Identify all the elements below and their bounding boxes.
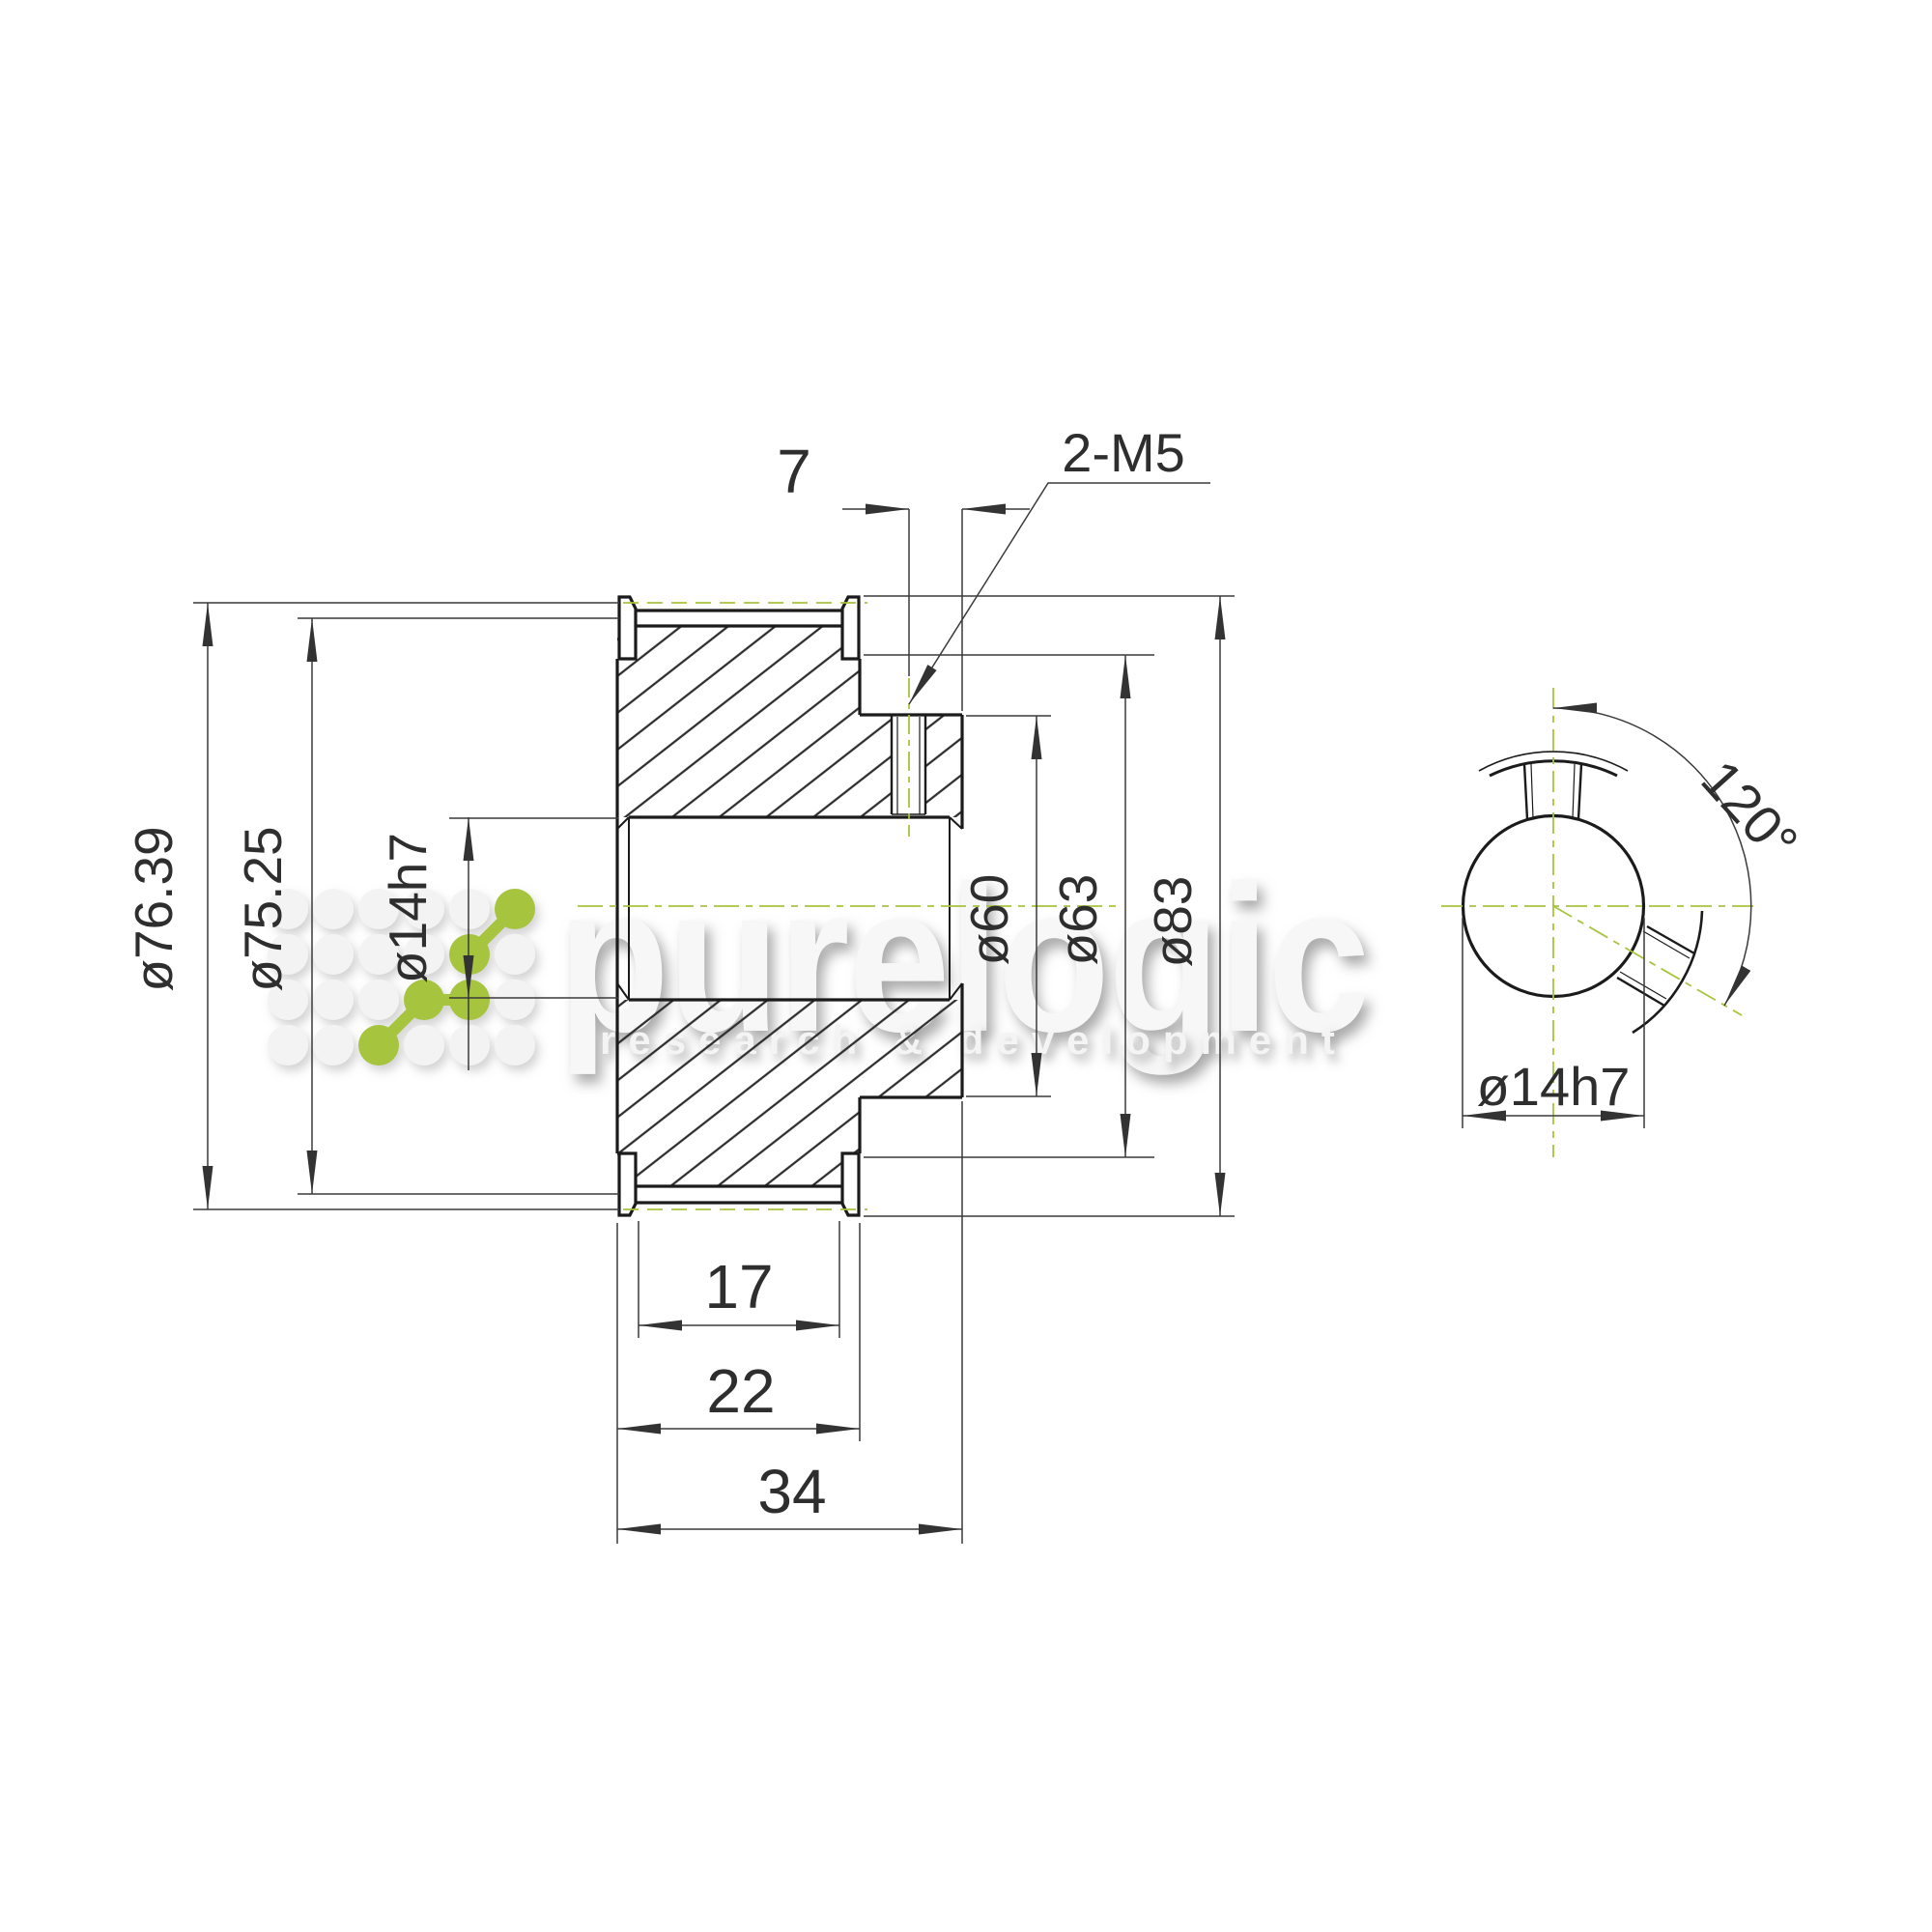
label-hub-d: ø63 bbox=[1048, 874, 1108, 966]
flange-rim-top-right bbox=[842, 597, 859, 659]
label-recess-d: ø60 bbox=[959, 874, 1019, 966]
bore-chamfers bbox=[617, 817, 962, 1000]
label-bore-end: ø14h7 bbox=[1477, 1056, 1631, 1117]
label-toothed-width: 22 bbox=[706, 1356, 775, 1426]
flange-rim-bottom-left bbox=[619, 1153, 636, 1215]
flange-rim-bottom-right bbox=[842, 1153, 859, 1215]
main-section-view bbox=[578, 597, 1122, 1215]
dim-setscrew-angle bbox=[1553, 708, 1751, 1006]
pulley-technical-drawing: ø76.39 ø75.25 ø14h7 ø60 ø63 ø83 7 2-M5 1… bbox=[0, 0, 1932, 1932]
label-belt-width: 17 bbox=[704, 1252, 773, 1321]
label-flange-d: ø83 bbox=[1143, 876, 1203, 968]
leader-setscrew-callout bbox=[909, 483, 1210, 704]
label-overall-length: 34 bbox=[757, 1457, 826, 1526]
label-tooth-od: ø76.39 bbox=[124, 826, 184, 991]
dimension-labels: ø76.39 ø75.25 ø14h7 ø60 ø63 ø83 7 2-M5 1… bbox=[124, 422, 1203, 1526]
drawing-canvas: purelogic research & development bbox=[0, 0, 1932, 1932]
dim-setscrew-offset bbox=[842, 509, 1030, 711]
label-setscrew-callout: 2-M5 bbox=[1062, 422, 1185, 483]
label-bore-side: ø14h7 bbox=[378, 833, 438, 983]
label-pitch-d: ø75.25 bbox=[233, 826, 293, 991]
setscrew-hole-120 bbox=[1617, 911, 1702, 1033]
end-detail-view: 120° ø14h7 bbox=[1441, 688, 1810, 1157]
label-setscrew-offset: 7 bbox=[777, 437, 811, 506]
flange-rim-top-left bbox=[619, 597, 636, 659]
label-setscrew-angle: 120° bbox=[1690, 749, 1809, 872]
